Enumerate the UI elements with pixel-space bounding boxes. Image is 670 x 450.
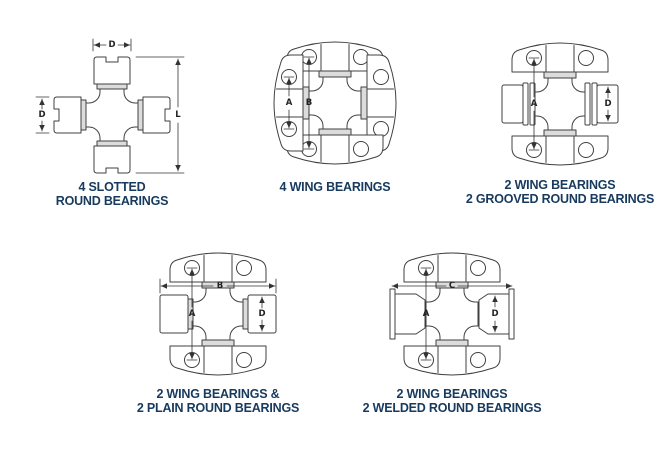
caption-line: 2 GROOVED ROUND BEARINGS (448, 192, 670, 206)
wing-bearing-bottom (170, 340, 266, 375)
dimension-side-height: D (36, 97, 49, 133)
slotted-bearing-right (138, 97, 170, 133)
slotted-bearing-top (94, 57, 130, 89)
wing-bearing-bottom (404, 340, 500, 375)
diagram-4-slotted-round-bearings: D D L (25, 28, 205, 180)
grooved-bearing-right (585, 83, 618, 125)
bearing-types-chart: D D L (0, 0, 670, 450)
caption-line: 2 PLAIN ROUND BEARINGS (96, 401, 340, 415)
caption-line: 4 SLOTTED (12, 180, 212, 194)
dim-label-overall-length: L (175, 110, 181, 120)
caption-line: ROUND BEARINGS (12, 194, 212, 208)
dim-label-a: A (423, 309, 430, 319)
diagram-2-wing-2-plain-round: B A D (130, 233, 308, 385)
caption-line: 2 WING BEARINGS (448, 178, 670, 192)
diagram-4-wing-bearings: A B (250, 28, 420, 180)
dim-label-c: C (449, 281, 455, 291)
dim-label-b: B (217, 281, 223, 291)
wing-bearing-top (512, 43, 608, 78)
dim-label-b: B (306, 98, 312, 108)
caption-2-wing-2-grooved: 2 WING BEARINGS 2 GROOVED ROUND BEARINGS (448, 178, 670, 207)
dimension-top-width: D (93, 39, 131, 51)
diagram-2-wing-2-welded-round: C A D (362, 233, 544, 385)
caption-2-wing-2-plain: 2 WING BEARINGS & 2 PLAIN ROUND BEARINGS (96, 387, 340, 416)
dim-label-side-height: D (38, 110, 45, 120)
caption-4-slotted-round-bearings: 4 SLOTTED ROUND BEARINGS (12, 180, 212, 209)
dim-label-a: A (189, 309, 196, 319)
caption-4-wing-bearings: 4 WING BEARINGS (235, 180, 435, 194)
dim-label-d: D (258, 309, 265, 319)
slotted-bearing-bottom (94, 141, 130, 173)
caption-line: 4 WING BEARINGS (235, 180, 435, 194)
slotted-bearing-left (54, 97, 86, 133)
caption-line: 2 WING BEARINGS (330, 387, 574, 401)
dim-label-d: D (604, 99, 611, 109)
caption-line: 2 WING BEARINGS & (96, 387, 340, 401)
caption-line: 2 WELDED ROUND BEARINGS (330, 401, 574, 415)
dim-label-a: A (531, 99, 538, 109)
caption-2-wing-2-welded: 2 WING BEARINGS 2 WELDED ROUND BEARINGS (330, 387, 574, 416)
dim-label-top-width: D (108, 40, 115, 50)
dim-label-d: D (491, 309, 498, 319)
dim-label-a: A (286, 98, 293, 108)
diagram-2-wing-2-grooved-round: A D (475, 30, 647, 178)
wing-bearing-bottom (512, 130, 608, 165)
welded-bearing-left (390, 289, 425, 339)
